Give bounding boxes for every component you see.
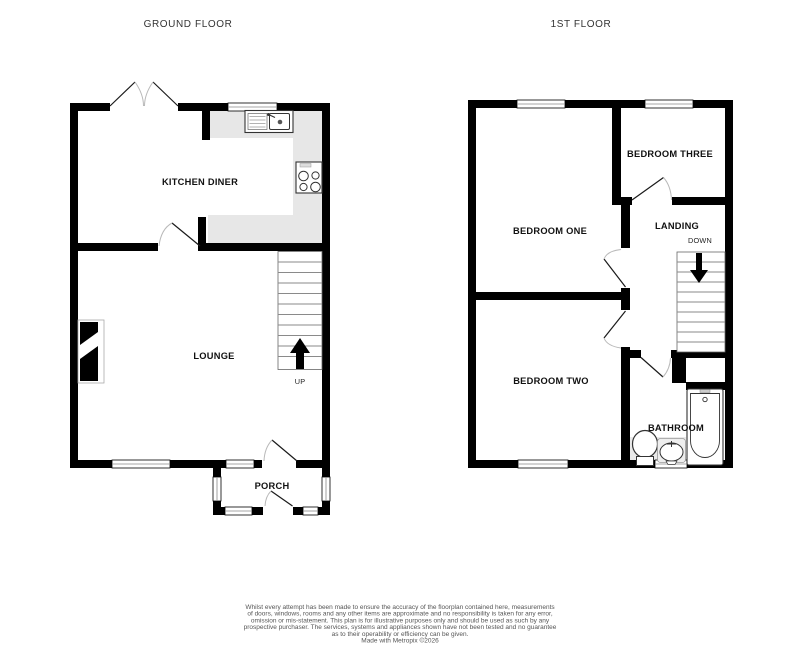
fireplace-icon xyxy=(78,320,104,383)
toilet-icon xyxy=(633,431,658,466)
bathroom-door xyxy=(641,358,671,378)
bedroom-two-door xyxy=(604,311,626,348)
porch-entry-door xyxy=(265,491,293,506)
ground-floor-plan: GROUND FLOOR xyxy=(70,19,330,515)
ground-floor-title: GROUND FLOOR xyxy=(144,19,233,30)
kitchen-door-arc xyxy=(159,223,172,246)
bedroom-one-door-arc xyxy=(604,250,621,260)
first-doors xyxy=(604,178,672,378)
bathtub-tap xyxy=(700,390,710,393)
bathroom-door-leaf xyxy=(641,358,663,378)
hob-burner-3 xyxy=(300,183,307,190)
french-doors xyxy=(110,82,178,106)
lounge-label: LOUNGE xyxy=(193,351,234,361)
wash-basin-icon xyxy=(658,439,686,465)
hob-burner-1 xyxy=(299,171,309,181)
bedroom-two-label: BEDROOM TWO xyxy=(513,376,589,386)
toilet-bowl xyxy=(633,431,658,458)
up-label: UP xyxy=(295,377,306,386)
french-door-leaf-left xyxy=(110,82,135,106)
french-door-arc-right xyxy=(145,82,154,106)
kitchen-door xyxy=(159,223,200,246)
down-label: DOWN xyxy=(688,236,712,245)
porch-lounge-door-arc xyxy=(264,440,272,461)
kitchen-diner-label: KITCHEN DINER xyxy=(162,177,238,187)
staircase-down xyxy=(677,252,725,352)
bathtub-plughole xyxy=(703,397,707,401)
hob-burner-4 xyxy=(311,182,321,192)
landing-label: LANDING xyxy=(655,221,699,231)
french-door-arc-left xyxy=(135,82,144,106)
floorplan-page: GROUND FLOOR xyxy=(0,0,800,646)
first-floor-title: 1ST FLOOR xyxy=(551,19,612,30)
sink-plughole xyxy=(278,120,283,125)
basin-pedestal xyxy=(666,461,677,465)
bedroom-three-door-arc xyxy=(664,178,672,201)
french-door-leaf-right xyxy=(153,82,178,106)
porch-lounge-door-leaf xyxy=(272,440,297,461)
bedroom-one-door xyxy=(604,250,626,288)
hob-burner-2 xyxy=(312,172,319,179)
toilet-cistern xyxy=(637,457,654,466)
bedroom-one-door-leaf xyxy=(604,259,626,287)
first-floor-plan: 1ST FLOOR xyxy=(468,19,733,468)
hob-icon xyxy=(296,162,322,193)
kitchen-door-leaf xyxy=(172,223,200,246)
disclaimer-credit: Made with Metropix ©2026 xyxy=(361,637,439,645)
staircase-up xyxy=(278,252,322,370)
bathroom-label: BATHROOM xyxy=(648,423,704,433)
sink-tap-base xyxy=(267,113,270,116)
porch-entry-door-arc xyxy=(265,491,271,506)
bathroom-door-arc xyxy=(663,358,671,377)
bedroom-two-door-arc xyxy=(604,338,621,348)
sink-icon xyxy=(245,111,293,133)
bedroom-three-door-leaf xyxy=(632,178,664,201)
hob-controls xyxy=(300,164,311,168)
disclaimer-block: Whilst every attempt has been made to en… xyxy=(244,604,557,645)
porch-lounge-door xyxy=(264,440,297,461)
floorplan-canvas: GROUND FLOOR xyxy=(0,0,800,646)
bedroom-two-door-leaf xyxy=(604,311,626,338)
bedroom-three-label: BEDROOM THREE xyxy=(627,149,713,159)
bedroom-one-label: BEDROOM ONE xyxy=(513,226,587,236)
porch-entry-door-leaf xyxy=(271,491,293,506)
bedroom-three-door xyxy=(632,178,672,201)
porch-label: PORCH xyxy=(255,481,290,491)
